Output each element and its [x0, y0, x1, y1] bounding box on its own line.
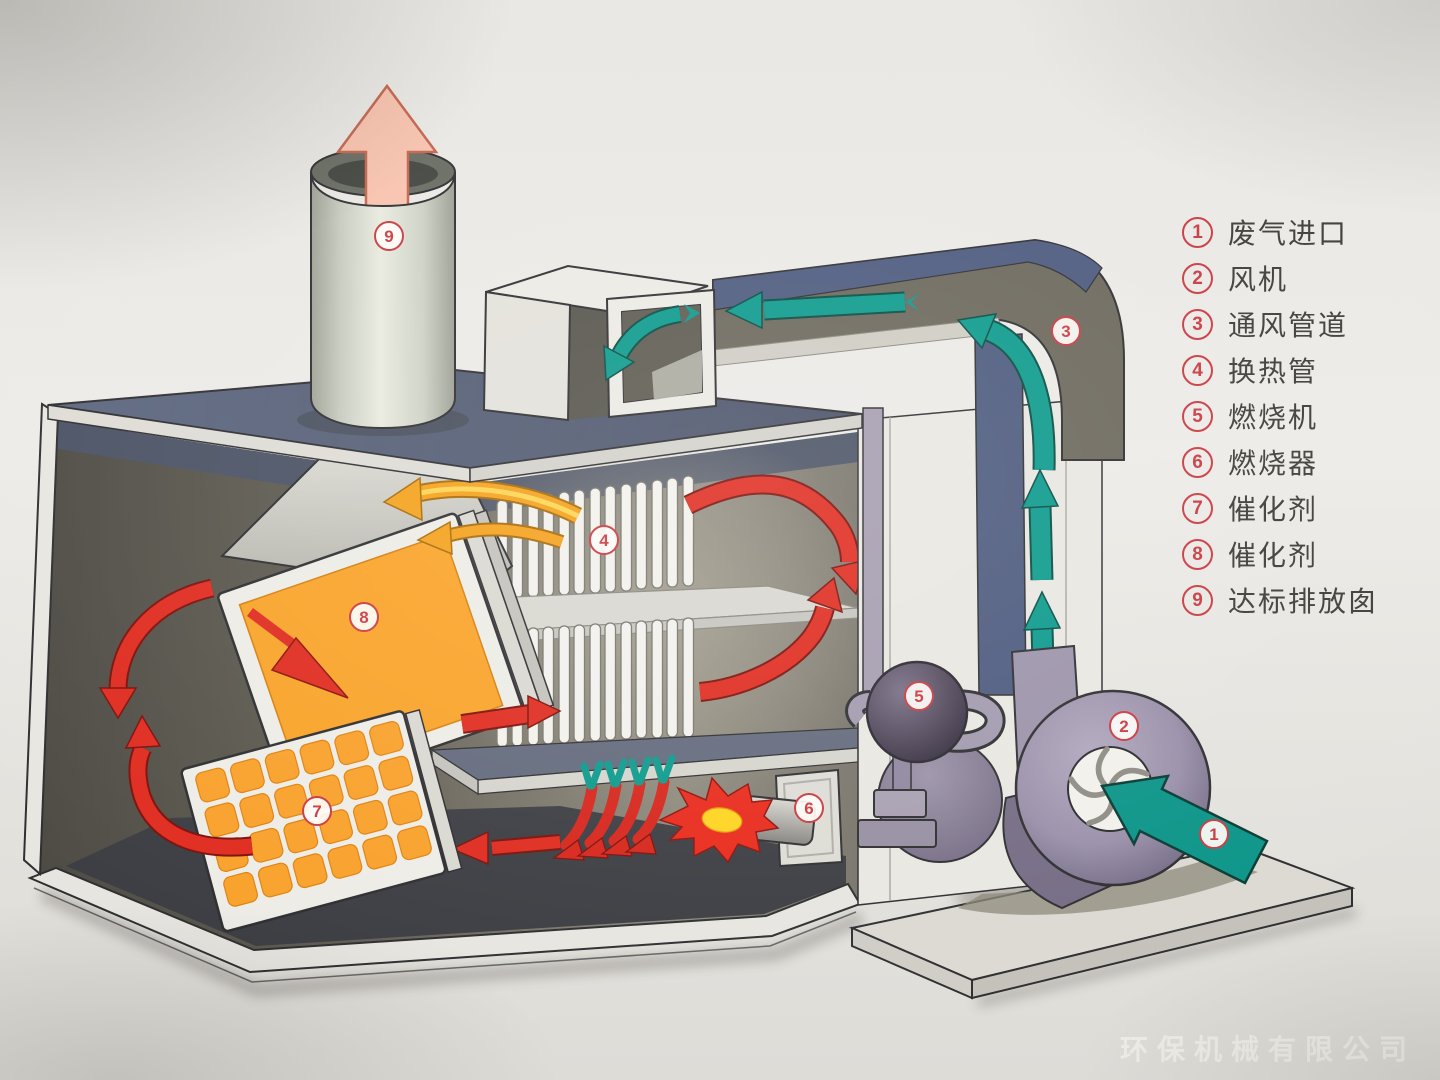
- legend-label-6: 燃烧器: [1228, 442, 1318, 482]
- marker-3: 3: [1051, 316, 1081, 346]
- legend-label-4: 换热管: [1228, 350, 1318, 390]
- legend-item: 4 换热管: [1182, 347, 1378, 393]
- legend-item: 8 催化剂: [1182, 531, 1378, 577]
- company-watermark: 环保机械有限公司: [1120, 1028, 1416, 1068]
- legend-num-5: 5: [1182, 401, 1213, 432]
- legend-num-6: 6: [1182, 447, 1213, 478]
- marker-8: 8: [349, 602, 379, 632]
- legend-num-1: 1: [1182, 217, 1213, 248]
- legend-item: 6 燃烧器: [1182, 439, 1378, 485]
- marker-4: 4: [589, 525, 619, 555]
- legend-num-2: 2: [1182, 263, 1213, 294]
- legend-num-7: 7: [1182, 493, 1213, 524]
- legend: 1 废气进口 2 风机 3 通风管道 4 换热管 5 燃烧机 6 燃烧器 7 催…: [1182, 209, 1378, 623]
- legend-item: 5 燃烧机: [1182, 393, 1378, 439]
- legend-label-9: 达标排放囱: [1228, 580, 1378, 620]
- marker-9: 9: [374, 221, 404, 251]
- marker-7: 7: [302, 796, 332, 826]
- marker-5: 5: [904, 681, 934, 711]
- legend-item: 2 风机: [1182, 255, 1378, 301]
- marker-6: 6: [794, 793, 824, 823]
- roof-inlet-box: [484, 266, 716, 420]
- legend-label-5: 燃烧机: [1228, 396, 1318, 436]
- legend-num-3: 3: [1182, 309, 1213, 340]
- legend-label-2: 风机: [1228, 258, 1288, 298]
- legend-label-8: 催化剂: [1228, 534, 1318, 574]
- legend-label-7: 催化剂: [1228, 488, 1318, 528]
- legend-num-8: 8: [1182, 539, 1213, 570]
- legend-num-4: 4: [1182, 355, 1213, 386]
- marker-1: 1: [1199, 819, 1229, 849]
- legend-num-9: 9: [1182, 585, 1213, 616]
- legend-item: 7 催化剂: [1182, 485, 1378, 531]
- diagram-page: 1 2 3 4 5 6 7 8 9 1 废气进口 2 风机 3 通风管道 4 换…: [0, 0, 1440, 1080]
- chimney: [297, 86, 469, 436]
- marker-2: 2: [1109, 711, 1139, 741]
- legend-label-3: 通风管道: [1228, 304, 1348, 344]
- legend-item: 1 废气进口: [1182, 209, 1378, 255]
- legend-label-1: 废气进口: [1228, 212, 1348, 252]
- legend-item: 3 通风管道: [1182, 301, 1378, 347]
- legend-item: 9 达标排放囱: [1182, 577, 1378, 623]
